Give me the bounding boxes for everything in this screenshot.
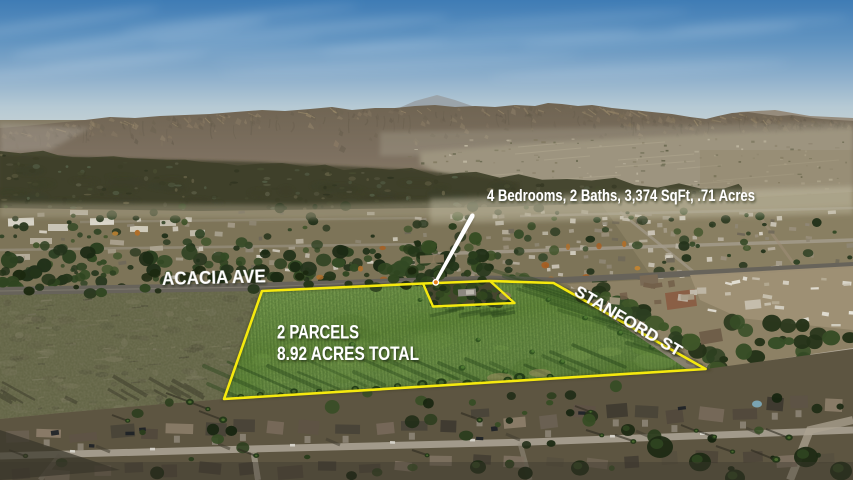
- svg-text:8.92 ACRES TOTAL: 8.92 ACRES TOTAL: [277, 344, 419, 365]
- svg-text:4 Bedrooms, 2 Baths, 3,374 SqF: 4 Bedrooms, 2 Baths, 3,374 SqFt, .71 Acr…: [487, 186, 755, 205]
- svg-text:ACACIA AVE: ACACIA AVE: [162, 266, 266, 289]
- svg-text:2 PARCELS: 2 PARCELS: [277, 323, 359, 344]
